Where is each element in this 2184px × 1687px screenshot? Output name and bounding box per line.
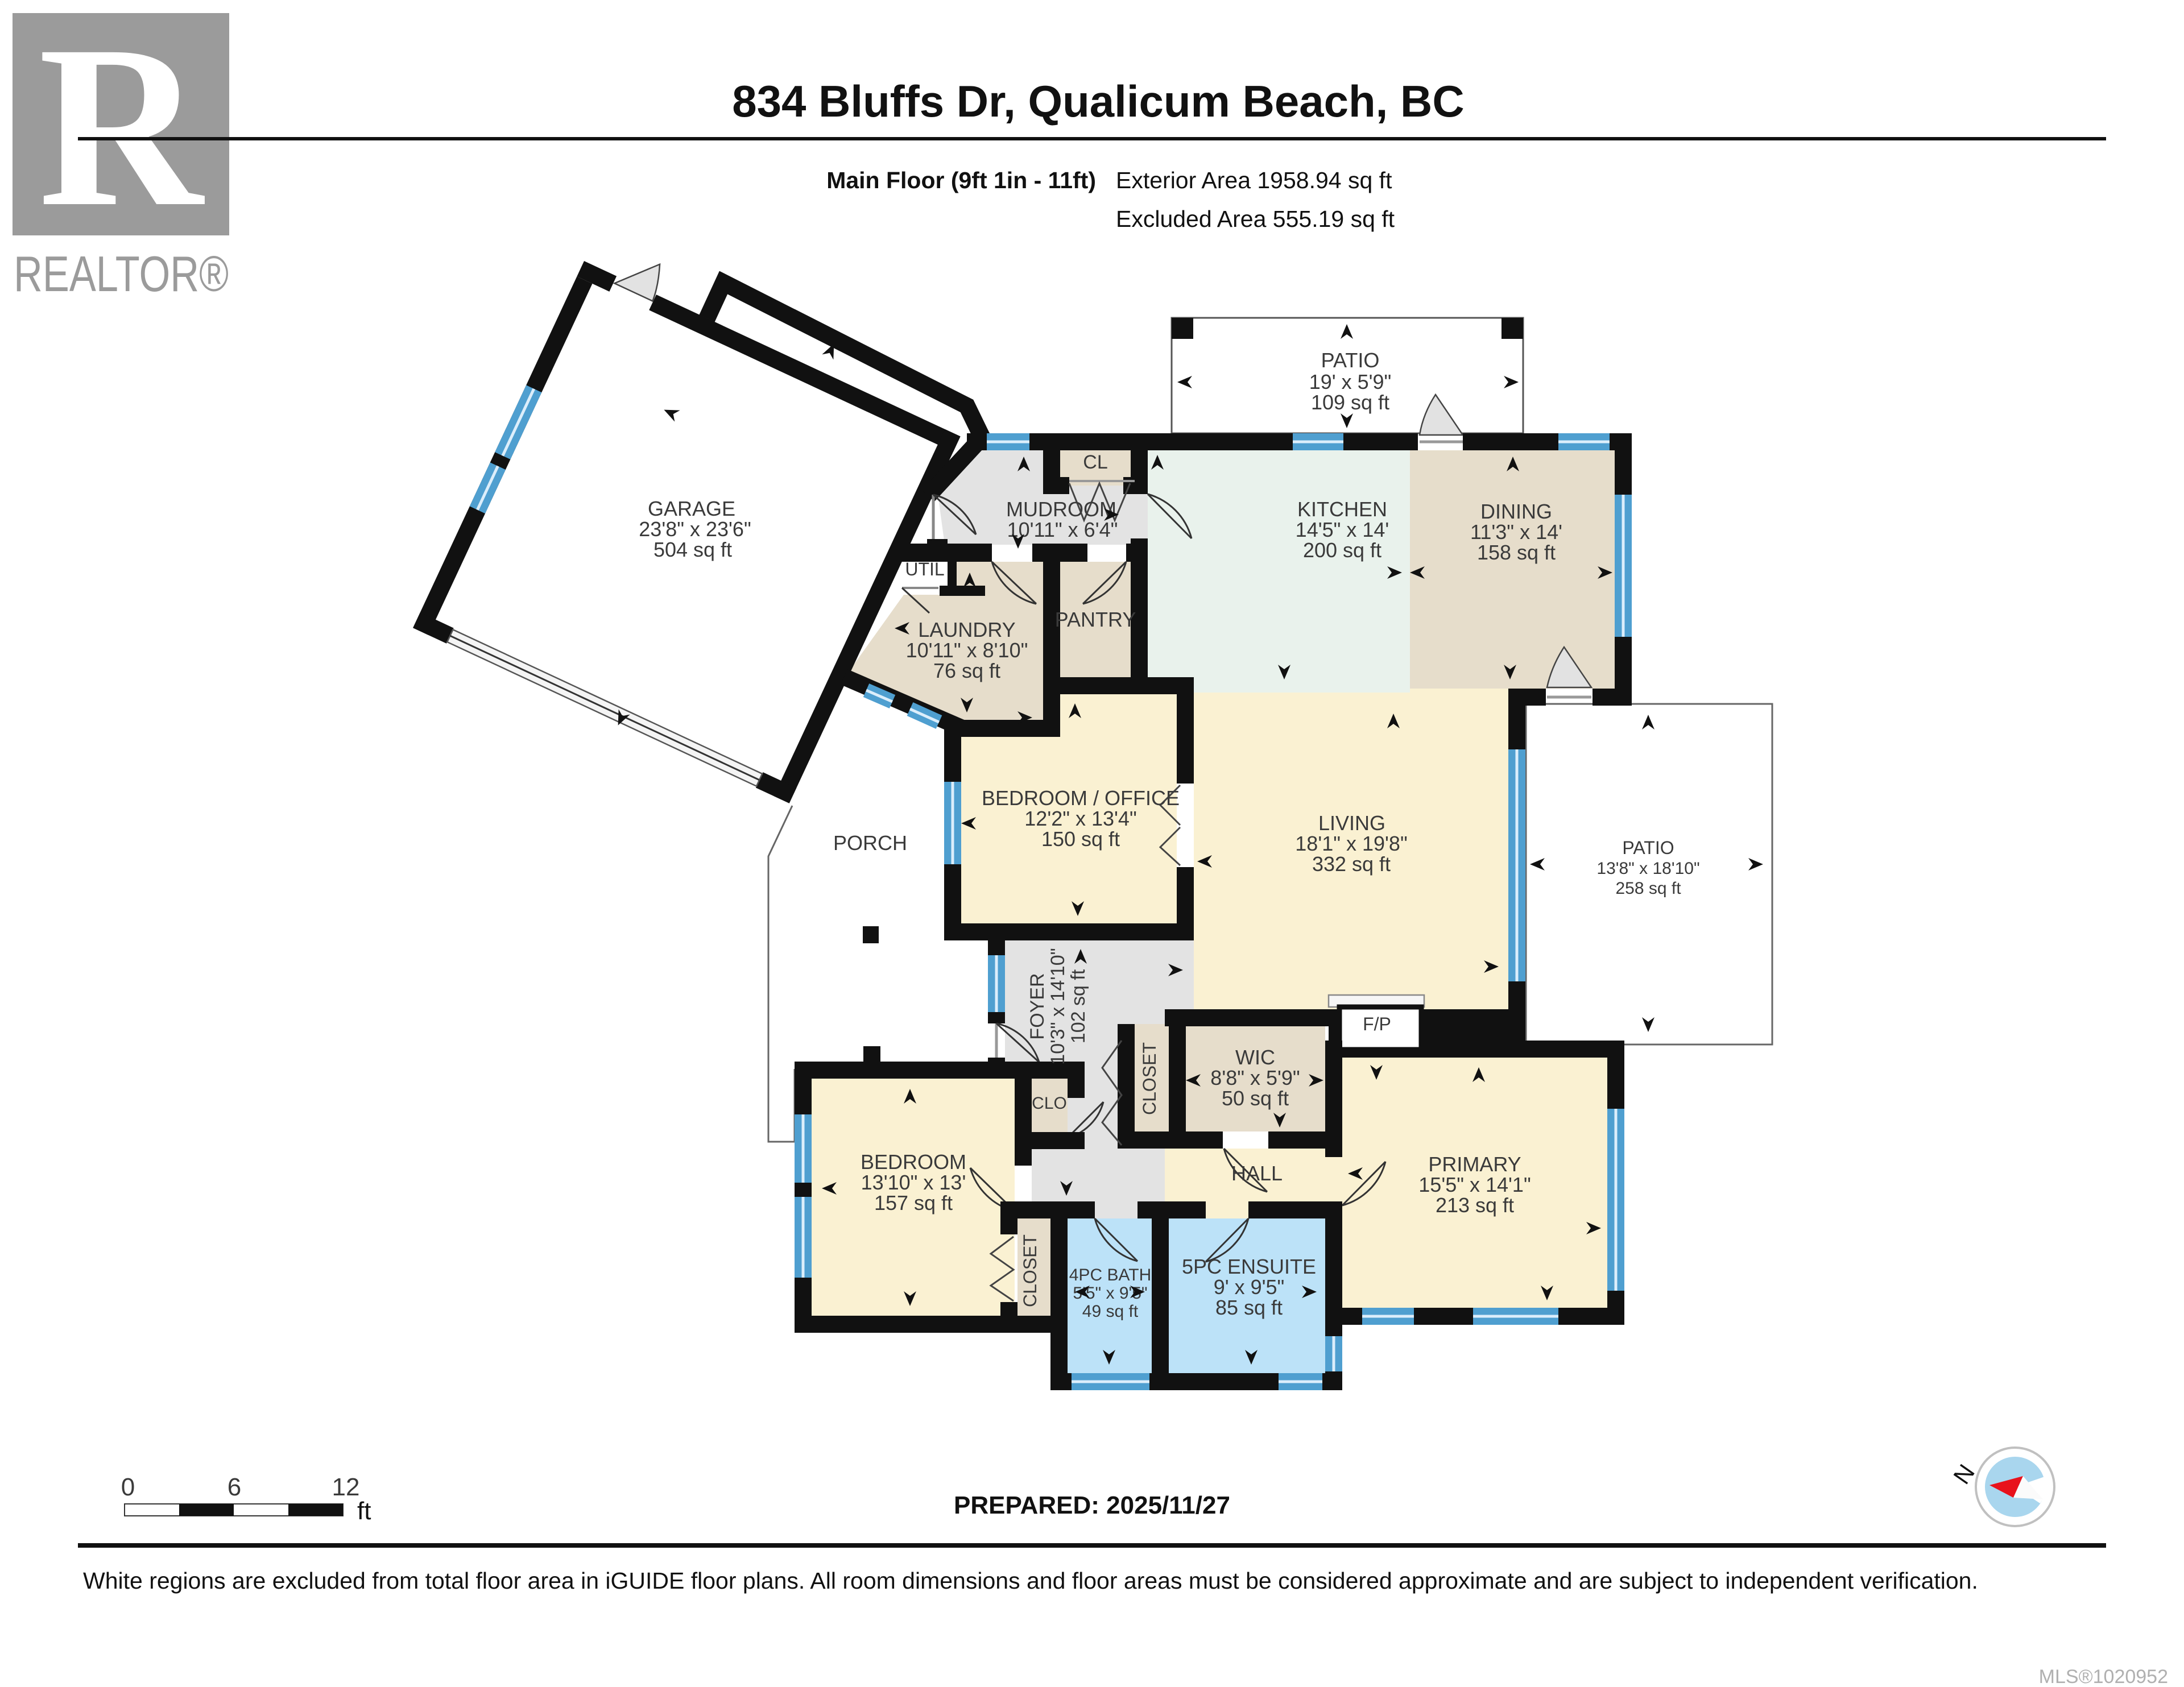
- svg-text:11'3" x 14': 11'3" x 14': [1470, 520, 1562, 544]
- svg-text:PATIO: PATIO: [1321, 349, 1380, 372]
- svg-text:23'8" x 23'6": 23'8" x 23'6": [639, 517, 751, 541]
- svg-text:FOYER: FOYER: [1027, 973, 1048, 1039]
- svg-text:PATIO: PATIO: [1622, 838, 1674, 858]
- svg-text:WIC: WIC: [1235, 1046, 1275, 1069]
- svg-text:CLO: CLO: [1032, 1094, 1067, 1113]
- svg-text:9' x 9'5": 9' x 9'5": [1214, 1275, 1285, 1299]
- svg-text:MLS®1020952: MLS®1020952: [2039, 1666, 2168, 1687]
- svg-text:CL: CL: [1083, 451, 1107, 473]
- svg-text:12: 12: [332, 1473, 360, 1501]
- svg-text:UTIL: UTIL: [905, 559, 944, 579]
- svg-text:13'10" x 13': 13'10" x 13': [861, 1171, 966, 1194]
- svg-text:CLOSET: CLOSET: [1139, 1042, 1160, 1115]
- svg-text:White regions are excluded fro: White regions are excluded from total fl…: [83, 1568, 1978, 1594]
- svg-text:504 sq ft: 504 sq ft: [653, 538, 732, 561]
- svg-text:BEDROOM / OFFICE: BEDROOM / OFFICE: [982, 786, 1180, 810]
- svg-text:BEDROOM: BEDROOM: [861, 1150, 966, 1174]
- svg-text:332 sq ft: 332 sq ft: [1312, 852, 1391, 876]
- svg-text:Excluded Area 555.19 sq ft: Excluded Area 555.19 sq ft: [1116, 206, 1395, 232]
- svg-text:PRIMARY: PRIMARY: [1428, 1153, 1521, 1176]
- svg-text:102 sq ft: 102 sq ft: [1068, 969, 1089, 1043]
- svg-text:158 sq ft: 158 sq ft: [1477, 541, 1556, 564]
- svg-text:19' x 5'9": 19' x 5'9": [1309, 370, 1392, 393]
- svg-text:15'5" x 14'1": 15'5" x 14'1": [1418, 1173, 1531, 1196]
- svg-text:200 sq ft: 200 sq ft: [1303, 538, 1381, 562]
- svg-text:R: R: [39, 0, 206, 255]
- svg-text:49 sq ft: 49 sq ft: [1082, 1302, 1139, 1321]
- svg-text:4PC BATH: 4PC BATH: [1069, 1266, 1151, 1284]
- svg-text:10'11" x 6'4": 10'11" x 6'4": [1007, 518, 1118, 541]
- svg-text:150 sq ft: 150 sq ft: [1041, 827, 1120, 851]
- svg-text:HALL: HALL: [1231, 1162, 1283, 1185]
- svg-text:213 sq ft: 213 sq ft: [1436, 1193, 1514, 1217]
- svg-text:REALTOR®: REALTOR®: [14, 246, 229, 302]
- svg-text:85 sq ft: 85 sq ft: [1215, 1296, 1283, 1319]
- svg-text:DINING: DINING: [1480, 500, 1552, 523]
- svg-text:50 sq ft: 50 sq ft: [1222, 1087, 1289, 1110]
- svg-text:MUDROOM: MUDROOM: [1006, 498, 1116, 521]
- svg-text:109 sq ft: 109 sq ft: [1311, 391, 1389, 414]
- svg-text:13'8" x 18'10": 13'8" x 18'10": [1596, 859, 1699, 878]
- svg-text:CLOSET: CLOSET: [1020, 1234, 1040, 1307]
- svg-text:0: 0: [121, 1473, 135, 1501]
- svg-text:10'11" x 8'10": 10'11" x 8'10": [906, 639, 1028, 662]
- svg-text:KITCHEN: KITCHEN: [1297, 498, 1387, 521]
- svg-text:F/P: F/P: [1363, 1014, 1391, 1034]
- svg-text:14'5" x 14': 14'5" x 14': [1296, 518, 1389, 541]
- svg-text:12'2" x 13'4": 12'2" x 13'4": [1024, 807, 1136, 830]
- svg-text:10'3" x 14'10": 10'3" x 14'10": [1047, 948, 1069, 1064]
- svg-text:5PC ENSUITE: 5PC ENSUITE: [1182, 1255, 1316, 1278]
- svg-text:Main Floor (9ft 1in - 11ft): Main Floor (9ft 1in - 11ft): [826, 167, 1096, 193]
- svg-text:PREPARED: 2025/11/27: PREPARED: 2025/11/27: [954, 1491, 1230, 1519]
- svg-text:6: 6: [227, 1473, 241, 1501]
- svg-text:18'1" x 19'8": 18'1" x 19'8": [1295, 832, 1407, 855]
- svg-text:Exterior Area 1958.94 sq ft: Exterior Area 1958.94 sq ft: [1116, 167, 1392, 193]
- svg-text:258 sq ft: 258 sq ft: [1615, 879, 1681, 898]
- svg-text:PORCH: PORCH: [833, 831, 907, 855]
- svg-text:PANTRY: PANTRY: [1055, 608, 1136, 631]
- svg-text:LIVING: LIVING: [1318, 811, 1385, 835]
- svg-text:ft: ft: [357, 1497, 371, 1525]
- svg-text:GARAGE: GARAGE: [648, 497, 735, 520]
- svg-text:8'8" x 5'9": 8'8" x 5'9": [1210, 1066, 1300, 1089]
- svg-text:157 sq ft: 157 sq ft: [874, 1191, 953, 1215]
- svg-text:LAUNDRY: LAUNDRY: [918, 618, 1015, 641]
- svg-text:834 Bluffs Dr, Qualicum Beach,: 834 Bluffs Dr, Qualicum Beach, BC: [732, 76, 1464, 126]
- svg-text:76 sq ft: 76 sq ft: [933, 659, 1000, 682]
